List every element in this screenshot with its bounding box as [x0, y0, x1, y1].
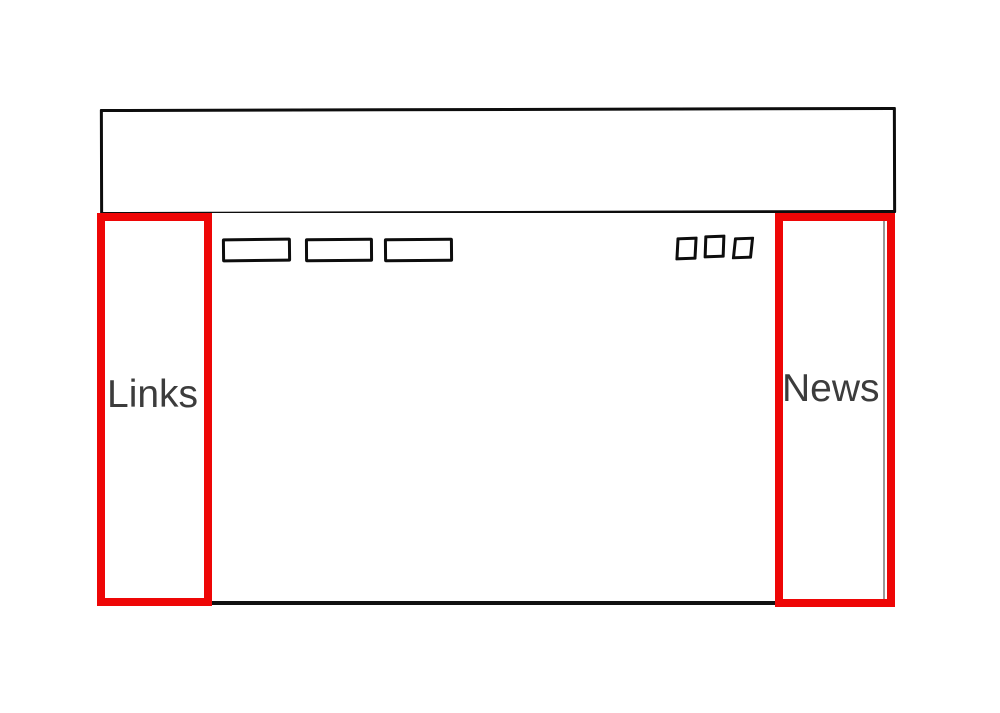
wireframe-canvas: Links News: [0, 0, 1000, 713]
news-sidebar-label: News: [782, 367, 880, 412]
nav-button-placeholder-icon: [222, 238, 291, 263]
toolbar-square-icon: [704, 235, 726, 259]
nav-button-placeholder-icon: [384, 238, 453, 263]
toolbar-square-icon: [675, 237, 697, 261]
links-sidebar-highlight: Links: [97, 213, 212, 606]
header-box: [100, 107, 896, 215]
links-sidebar-label: Links: [107, 373, 198, 418]
news-sidebar-highlight: News: [775, 213, 895, 607]
nav-button-placeholder-icon: [305, 238, 373, 262]
toolbar-square-icon: [732, 237, 754, 260]
